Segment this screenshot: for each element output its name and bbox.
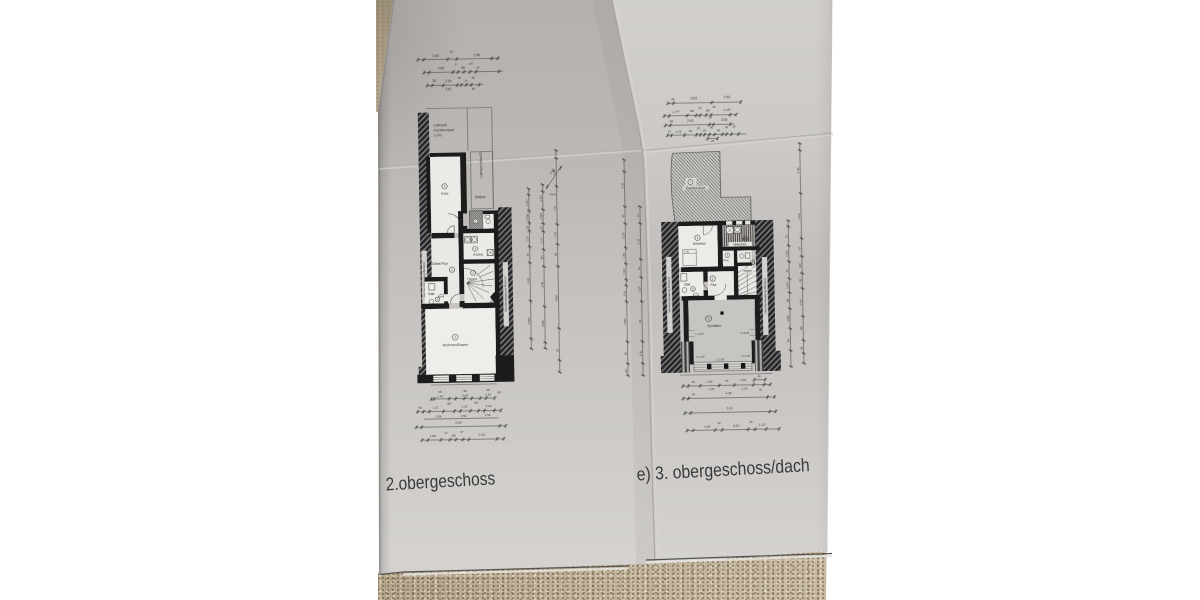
svg-text:Treppe: Treppe	[742, 269, 752, 273]
svg-text:3.03: 3.03	[691, 96, 698, 100]
svg-text:2.60: 2.60	[438, 66, 445, 70]
svg-text:21: 21	[621, 214, 625, 218]
svg-text:1.62³: 1.62³	[637, 286, 641, 293]
svg-text:90: 90	[717, 128, 721, 132]
svg-text:e) 3. obergeschoss/dach: e) 3. obergeschoss/dach	[636, 454, 810, 485]
svg-text:96³: 96³	[690, 109, 694, 113]
svg-text:14: 14	[784, 235, 788, 239]
svg-text:1.11: 1.11	[433, 405, 439, 409]
svg-text:1.68: 1.68	[704, 424, 710, 428]
svg-text:4.98³: 4.98³	[623, 318, 627, 325]
svg-text:94: 94	[689, 129, 693, 133]
svg-text:23: 23	[711, 139, 715, 143]
svg-text:42: 42	[692, 392, 696, 396]
svg-text:U+1.08: U+1.08	[741, 354, 750, 358]
svg-text:54: 54	[725, 379, 729, 383]
svg-text:1.57: 1.57	[525, 236, 529, 242]
svg-text:Küche: Küche	[473, 253, 483, 257]
svg-text:43³: 43³	[732, 124, 736, 128]
svg-text:21: 21	[539, 226, 543, 230]
svg-text:96: 96	[461, 66, 465, 70]
svg-text:Schlafen: Schlafen	[707, 324, 721, 328]
svg-text:Flur: Flur	[723, 258, 728, 262]
svg-text:2.30: 2.30	[638, 350, 642, 356]
svg-text:1.31³: 1.31³	[797, 213, 801, 220]
svg-text:6³: 6³	[477, 66, 480, 70]
svg-text:Dachterrasse: Dachterrasse	[686, 186, 706, 190]
svg-text:28: 28	[749, 420, 753, 424]
svg-text:1.10³: 1.10³	[785, 250, 789, 257]
svg-text:Flur: Flur	[710, 283, 717, 287]
svg-text:4.38: 4.38	[725, 391, 731, 395]
svg-text:1.12³: 1.12³	[539, 195, 543, 202]
svg-text:1: 1	[454, 335, 456, 339]
svg-text:7³: 7³	[455, 63, 458, 67]
svg-text:4.80³: 4.80³	[541, 320, 545, 327]
svg-text:42: 42	[692, 380, 696, 384]
svg-text:1.12³: 1.12³	[759, 422, 766, 426]
svg-text:23: 23	[697, 126, 701, 130]
svg-text:1.40: 1.40	[622, 253, 626, 259]
svg-text:46: 46	[554, 252, 558, 256]
svg-text:96: 96	[710, 126, 714, 130]
svg-text:1.93³: 1.93³	[786, 315, 790, 322]
svg-text:4.80³: 4.80³	[527, 317, 531, 324]
svg-text:18: 18	[457, 76, 461, 80]
svg-text:46: 46	[785, 299, 789, 303]
svg-text:1.42: 1.42	[485, 392, 491, 396]
svg-text:39: 39	[712, 105, 716, 109]
svg-text:19³: 19³	[786, 339, 790, 343]
svg-text:36: 36	[799, 346, 803, 350]
svg-text:66³: 66³	[452, 434, 456, 438]
svg-text:1.50³: 1.50³	[539, 213, 543, 220]
svg-text:96³: 96³	[706, 109, 710, 113]
svg-text:1: 1	[752, 260, 754, 264]
svg-text:2.60: 2.60	[432, 54, 439, 58]
svg-text:Nachbarbebauung-Bestand: Nachbarbebauung-Bestand	[503, 276, 508, 312]
svg-text:27: 27	[450, 50, 454, 54]
svg-text:14: 14	[709, 116, 713, 120]
svg-text:2.56: 2.56	[721, 118, 728, 122]
svg-text:Arbeiten: Arbeiten	[693, 242, 706, 246]
svg-text:1: 1	[708, 317, 710, 321]
svg-text:1.10: 1.10	[461, 404, 467, 408]
svg-text:39: 39	[670, 119, 674, 123]
svg-text:2.40: 2.40	[687, 119, 694, 123]
svg-text:6.16: 6.16	[620, 183, 624, 189]
svg-text:46³: 46³	[474, 401, 478, 405]
svg-text:1.52³: 1.52³	[622, 268, 626, 275]
svg-text:4.40: 4.40	[796, 167, 800, 173]
svg-text:33: 33	[432, 79, 436, 83]
svg-text:27: 27	[464, 79, 468, 83]
svg-text:36: 36	[638, 319, 642, 323]
svg-text:1.50³: 1.50³	[430, 434, 437, 438]
svg-text:2.19³: 2.19³	[621, 232, 625, 239]
svg-text:1.19³: 1.19³	[724, 108, 731, 112]
svg-text:Bad: Bad	[428, 292, 434, 296]
svg-text:13: 13	[444, 431, 448, 435]
svg-text:1.20: 1.20	[708, 387, 714, 391]
svg-text:Kind: Kind	[441, 192, 448, 196]
svg-text:Waschen: Waschen	[733, 242, 746, 246]
svg-text:14³: 14³	[702, 129, 706, 133]
svg-text:1.60: 1.60	[622, 291, 626, 297]
svg-text:Bad: Bad	[684, 282, 690, 286]
svg-text:Luftraum: Luftraum	[433, 123, 447, 127]
svg-text:1.54: 1.54	[436, 415, 442, 419]
svg-text:2.55: 2.55	[473, 53, 480, 57]
svg-text:L+3.08: L+3.08	[695, 332, 704, 336]
svg-text:1.42: 1.42	[462, 393, 468, 397]
svg-text:1.61: 1.61	[445, 87, 451, 91]
svg-text:1.54: 1.54	[485, 413, 491, 417]
svg-text:27: 27	[460, 430, 464, 434]
svg-text:39: 39	[671, 97, 675, 101]
svg-text:1.23: 1.23	[676, 129, 682, 133]
svg-text:1.54: 1.54	[461, 414, 467, 418]
svg-text:1.14: 1.14	[485, 404, 491, 408]
svg-text:35: 35	[623, 352, 627, 356]
svg-text:14: 14	[698, 106, 702, 110]
svg-text:1.5³: 1.5³	[553, 206, 557, 211]
svg-text:46³: 46³	[540, 255, 544, 259]
svg-text:2.26: 2.26	[445, 79, 452, 83]
svg-text:2.02: 2.02	[733, 423, 739, 427]
svg-text:2.19: 2.19	[636, 238, 640, 244]
svg-text:Nachbarbebauung-Bestand: Nachbarbebauung-Bestand	[763, 278, 768, 314]
svg-text:14: 14	[668, 129, 672, 133]
svg-text:Dachterrasse: Dachterrasse	[434, 128, 455, 132]
svg-text:1.11.08: 1.11.08	[716, 357, 725, 361]
svg-text:4.90³: 4.90³	[554, 295, 558, 302]
svg-text:5.21: 5.21	[727, 406, 733, 410]
svg-text:47: 47	[797, 246, 801, 250]
svg-text:2.30: 2.30	[526, 278, 530, 284]
svg-text:1.93: 1.93	[724, 95, 731, 99]
svg-text:14: 14	[637, 266, 641, 270]
svg-text:95: 95	[471, 76, 475, 80]
svg-text:Kind: Kind	[550, 192, 557, 196]
svg-text:Balkon: Balkon	[475, 195, 486, 199]
svg-text:2.obergeschoss: 2.obergeschoss	[385, 468, 496, 495]
svg-text:20³: 20³	[497, 390, 501, 394]
svg-text:Diele/Flur: Diele/Flur	[432, 262, 449, 266]
svg-text:Luftraum Höhe2G: Luftraum Höhe2G	[479, 151, 483, 178]
svg-text:50³: 50³	[447, 402, 451, 406]
svg-text:Treppe: Treppe	[467, 277, 478, 281]
svg-text:1.52³: 1.52³	[525, 213, 529, 220]
svg-text:1.41³: 1.41³	[525, 199, 529, 206]
svg-text:41: 41	[758, 374, 762, 378]
svg-text:3.00: 3.00	[540, 281, 544, 287]
svg-text:Luftr.: Luftr.	[684, 251, 690, 254]
svg-text:1.20: 1.20	[741, 386, 747, 390]
svg-text:1.77³: 1.77³	[673, 110, 680, 114]
svg-text:19³: 19³	[799, 326, 803, 330]
svg-text:1.42: 1.42	[437, 394, 443, 398]
svg-text:U+3.08: U+3.08	[740, 331, 749, 335]
svg-text:32³: 32³	[624, 369, 628, 373]
svg-text:1.93³: 1.93³	[798, 299, 802, 306]
svg-text:39: 39	[725, 125, 729, 129]
svg-text:1.92: 1.92	[706, 379, 712, 383]
svg-text:17³: 17³	[469, 62, 473, 66]
svg-text:46: 46	[526, 253, 530, 257]
svg-text:21: 21	[525, 225, 529, 229]
svg-text:47: 47	[785, 269, 789, 273]
svg-text:36: 36	[555, 348, 559, 352]
svg-text:46: 46	[798, 278, 802, 282]
svg-text:21: 21	[636, 213, 640, 217]
svg-text:1.OG: 1.OG	[434, 133, 443, 137]
svg-text:1.92: 1.92	[740, 378, 746, 382]
svg-text:Nachbarbebauung-Bestand: Nachbarbebauung-Bestand	[667, 277, 672, 313]
svg-text:90: 90	[472, 87, 476, 91]
svg-text:1.57: 1.57	[553, 231, 557, 237]
svg-text:41: 41	[759, 388, 763, 392]
svg-text:12: 12	[717, 421, 721, 425]
svg-text:1.10³: 1.10³	[785, 282, 789, 289]
svg-text:90³: 90³	[798, 263, 802, 267]
svg-text:60: 60	[419, 406, 423, 410]
svg-text:S+1.08: S+1.08	[696, 355, 705, 359]
svg-text:Wohnen/Essen: Wohnen/Essen	[442, 343, 468, 347]
svg-text:5.20¹: 5.20¹	[455, 421, 462, 425]
svg-text:2.32: 2.32	[479, 433, 485, 437]
svg-text:1.67: 1.67	[539, 237, 543, 243]
